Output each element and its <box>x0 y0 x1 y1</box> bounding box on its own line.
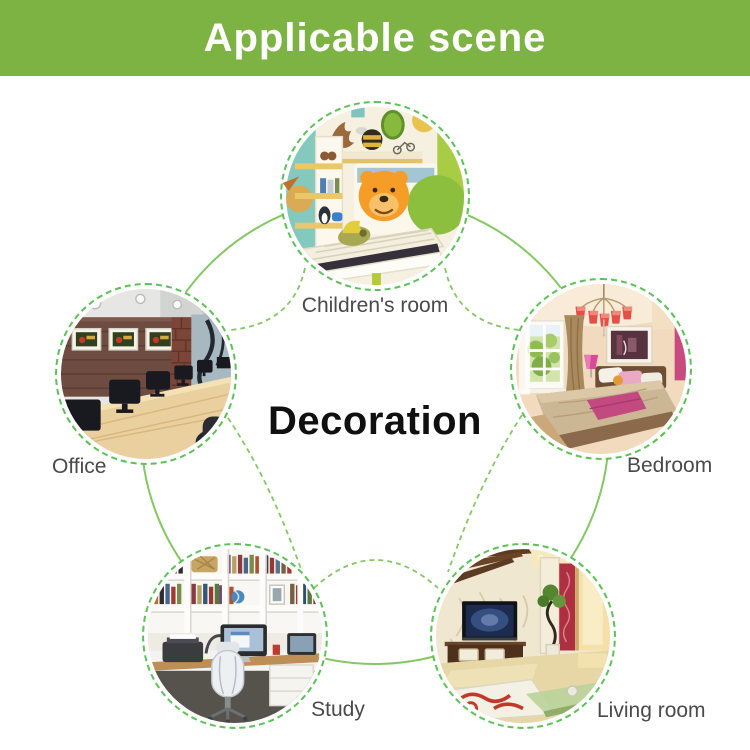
office-photo <box>61 289 231 459</box>
header-title: Applicable scene <box>204 16 547 61</box>
scene-tile-children-room <box>280 101 470 291</box>
living-room-photo <box>436 549 610 723</box>
applicable-scene-infographic: Applicable scene <box>0 0 750 750</box>
scene-tile-bedroom <box>510 278 692 460</box>
scene-label-office: Office <box>52 455 106 479</box>
office-illustration <box>61 289 231 459</box>
bedroom-illustration <box>516 284 686 454</box>
study-illustration <box>148 549 322 723</box>
center-title: Decoration <box>268 399 482 444</box>
scene-tile-living-room <box>430 543 616 729</box>
scene-label-study: Study <box>311 698 365 722</box>
scene-label-bedroom: Bedroom <box>627 454 712 478</box>
bedroom-photo <box>516 284 686 454</box>
children-room-illustration <box>286 107 464 285</box>
study-photo <box>148 549 322 723</box>
scene-label-living-room: Living room <box>597 699 706 723</box>
scene-tile-office <box>55 283 237 465</box>
living-room-illustration <box>436 549 610 723</box>
children-room-photo <box>286 107 464 285</box>
header-banner: Applicable scene <box>0 0 750 76</box>
scene-tile-study <box>142 543 328 729</box>
scene-label-children-room: Children's room <box>302 294 448 318</box>
